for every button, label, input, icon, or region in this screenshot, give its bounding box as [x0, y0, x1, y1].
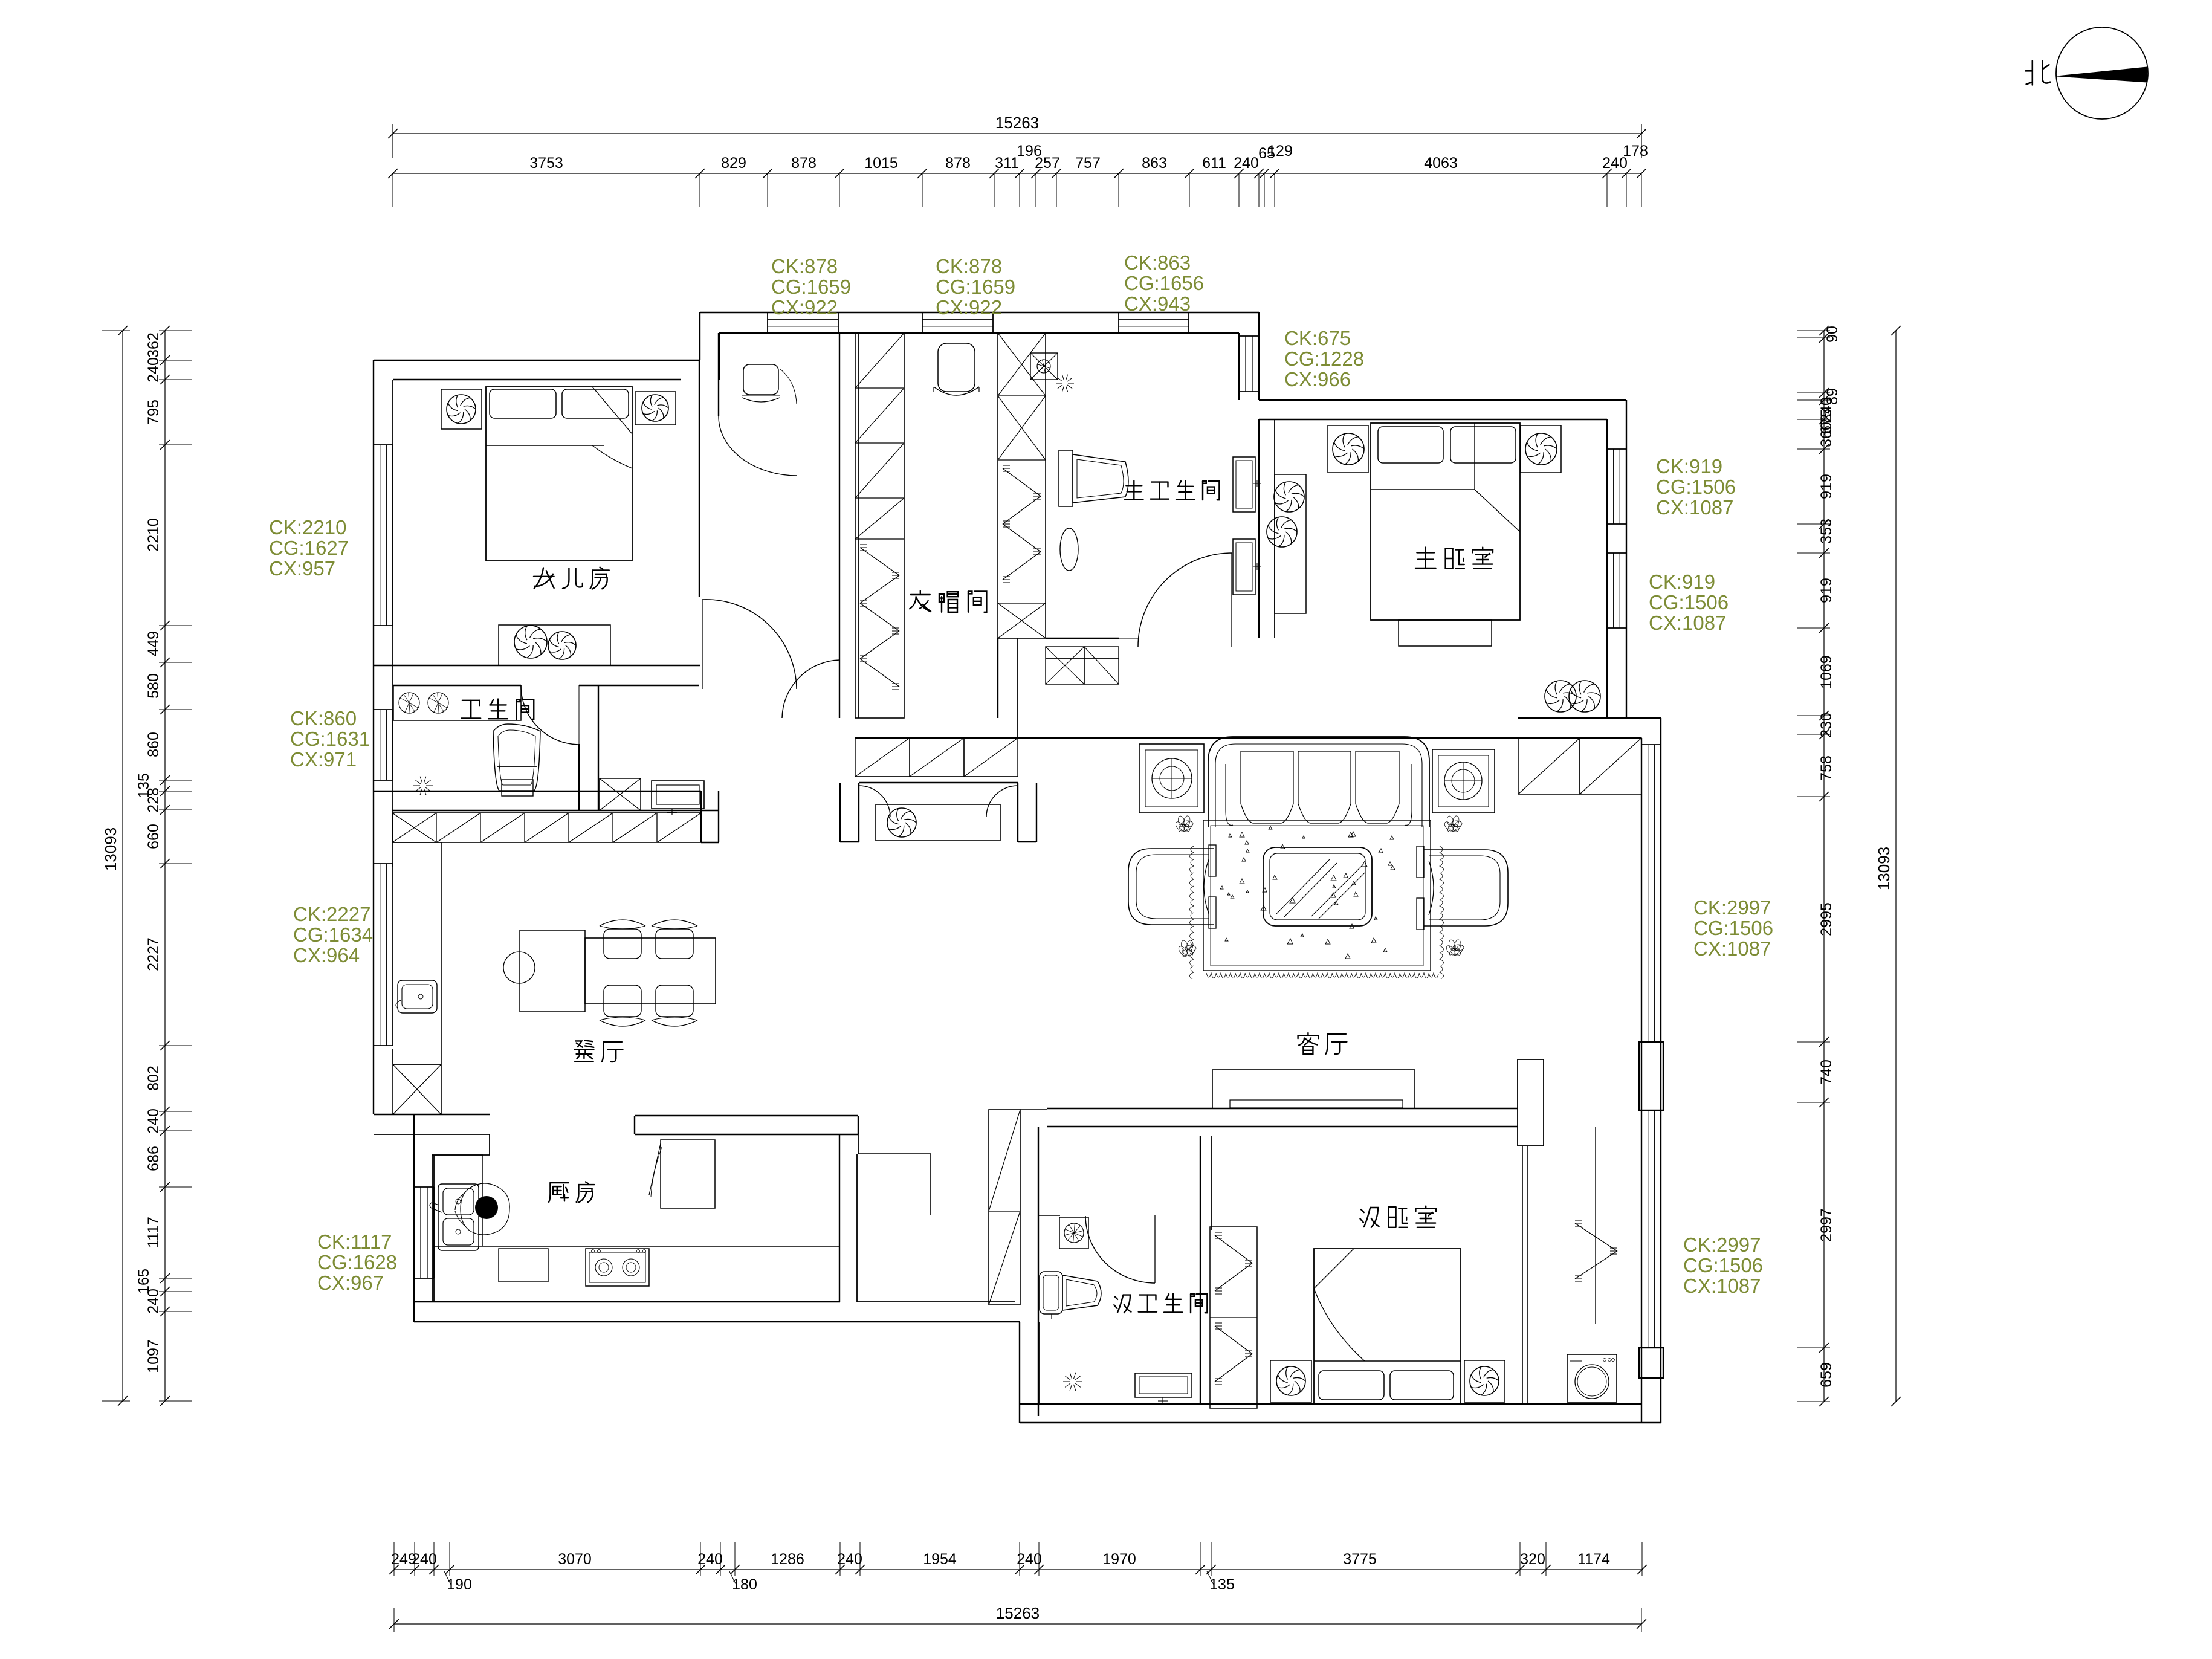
- svg-text:190: 190: [447, 1576, 472, 1593]
- svg-text:CX:1087: CX:1087: [1656, 496, 1733, 519]
- svg-text:320: 320: [1520, 1551, 1545, 1568]
- svg-text:13093: 13093: [1875, 847, 1893, 890]
- svg-text:178: 178: [1623, 143, 1648, 160]
- svg-text:1069: 1069: [1818, 655, 1835, 689]
- svg-text:757: 757: [1075, 155, 1101, 172]
- svg-text:240: 240: [1017, 1551, 1042, 1568]
- svg-text:CG:1627: CG:1627: [269, 537, 349, 559]
- svg-text:129: 129: [1267, 143, 1293, 160]
- svg-text:CX:1087: CX:1087: [1683, 1275, 1761, 1297]
- svg-text:580: 580: [145, 673, 162, 699]
- svg-text:686: 686: [145, 1146, 162, 1171]
- svg-text:360: 360: [1818, 422, 1835, 447]
- svg-text:CK:2227: CK:2227: [293, 903, 370, 925]
- svg-text:240: 240: [145, 1289, 162, 1314]
- svg-text:180: 180: [732, 1576, 757, 1593]
- svg-text:240: 240: [837, 1551, 862, 1568]
- svg-text:1954: 1954: [923, 1551, 957, 1568]
- svg-text:2995: 2995: [1818, 902, 1835, 936]
- svg-text:15263: 15263: [996, 1604, 1040, 1622]
- svg-text:878: 878: [791, 155, 817, 172]
- svg-text:4063: 4063: [1424, 155, 1458, 172]
- svg-text:CG:1228: CG:1228: [1284, 348, 1364, 370]
- svg-text:878: 878: [945, 155, 971, 172]
- svg-text:CG:1659: CG:1659: [936, 276, 1015, 298]
- svg-text:CX:1087: CX:1087: [1693, 937, 1771, 960]
- svg-text:CK:2997: CK:2997: [1683, 1234, 1761, 1256]
- svg-text:2997: 2997: [1818, 1208, 1835, 1242]
- svg-text:CG:1506: CG:1506: [1693, 917, 1773, 939]
- svg-text:CG:1506: CG:1506: [1683, 1254, 1763, 1276]
- svg-text:CX:1087: CX:1087: [1649, 612, 1726, 634]
- svg-text:CX:943: CX:943: [1124, 293, 1191, 315]
- svg-text:CK:675: CK:675: [1284, 327, 1351, 349]
- svg-text:CG:1631: CG:1631: [290, 728, 370, 750]
- svg-text:3775: 3775: [1343, 1551, 1377, 1568]
- svg-text:CG:1628: CG:1628: [317, 1251, 397, 1273]
- svg-text:659: 659: [1818, 1362, 1835, 1388]
- svg-text:228: 228: [145, 787, 162, 813]
- svg-text:15263: 15263: [995, 114, 1039, 132]
- svg-text:257: 257: [1035, 155, 1060, 172]
- svg-text:135: 135: [1209, 1576, 1235, 1593]
- svg-text:CK:1117: CK:1117: [317, 1231, 392, 1253]
- svg-text:1117: 1117: [145, 1217, 162, 1248]
- svg-text:240: 240: [145, 357, 162, 383]
- svg-text:CX:922: CX:922: [771, 296, 838, 319]
- svg-text:CK:919: CK:919: [1649, 571, 1715, 593]
- svg-text:230: 230: [1818, 713, 1835, 738]
- svg-text:829: 829: [721, 155, 746, 172]
- svg-text:449: 449: [145, 631, 162, 656]
- svg-text:240: 240: [697, 1551, 723, 1568]
- svg-text:CK:2997: CK:2997: [1693, 896, 1771, 919]
- svg-text:863: 863: [1142, 155, 1167, 172]
- svg-text:1015: 1015: [864, 155, 898, 172]
- svg-text:CX:971: CX:971: [290, 748, 357, 771]
- svg-text:CK:860: CK:860: [290, 707, 357, 729]
- svg-text:1097: 1097: [145, 1339, 162, 1373]
- svg-text:CX:964: CX:964: [293, 944, 360, 966]
- svg-text:2210: 2210: [145, 518, 162, 552]
- svg-text:311: 311: [995, 155, 1019, 172]
- svg-text:CX:967: CX:967: [317, 1272, 384, 1294]
- svg-text:740: 740: [1818, 1059, 1835, 1085]
- svg-text:362: 362: [145, 332, 162, 358]
- svg-text:CX:966: CX:966: [1284, 368, 1351, 390]
- svg-text:1174: 1174: [1577, 1551, 1610, 1568]
- svg-text:795: 795: [145, 399, 162, 425]
- svg-text:CK:919: CK:919: [1656, 455, 1722, 477]
- svg-text:1286: 1286: [771, 1551, 804, 1568]
- svg-text:CK:878: CK:878: [771, 255, 838, 277]
- svg-text:3070: 3070: [558, 1551, 592, 1568]
- svg-text:CK:2210: CK:2210: [269, 516, 346, 538]
- svg-text:CK:878: CK:878: [936, 255, 1002, 277]
- svg-text:CX:922: CX:922: [936, 296, 1002, 319]
- svg-text:CG:1656: CG:1656: [1124, 272, 1204, 294]
- svg-text:240: 240: [1818, 397, 1835, 422]
- svg-text:CG:1659: CG:1659: [771, 276, 851, 298]
- svg-text:919: 919: [1818, 474, 1835, 499]
- svg-text:CG:1506: CG:1506: [1649, 591, 1729, 613]
- svg-text:240: 240: [1234, 155, 1259, 172]
- svg-text:240: 240: [412, 1551, 437, 1568]
- svg-text:90: 90: [1824, 326, 1841, 343]
- svg-text:660: 660: [145, 824, 162, 849]
- svg-text:CG:1506: CG:1506: [1656, 476, 1736, 498]
- svg-text:13093: 13093: [102, 827, 120, 871]
- svg-text:CX:957: CX:957: [269, 557, 335, 580]
- svg-text:919: 919: [1818, 578, 1835, 603]
- svg-text:CK:863: CK:863: [1124, 251, 1191, 274]
- svg-text:353: 353: [1818, 519, 1835, 544]
- svg-text:1970: 1970: [1102, 1551, 1136, 1568]
- svg-text:758: 758: [1818, 755, 1835, 781]
- svg-text:611: 611: [1202, 155, 1226, 172]
- svg-text:802: 802: [145, 1066, 162, 1091]
- svg-text:240: 240: [145, 1108, 162, 1134]
- svg-text:CG:1634: CG:1634: [293, 923, 373, 946]
- svg-text:860: 860: [145, 732, 162, 757]
- svg-text:2227: 2227: [145, 937, 162, 971]
- svg-text:3753: 3753: [529, 155, 563, 172]
